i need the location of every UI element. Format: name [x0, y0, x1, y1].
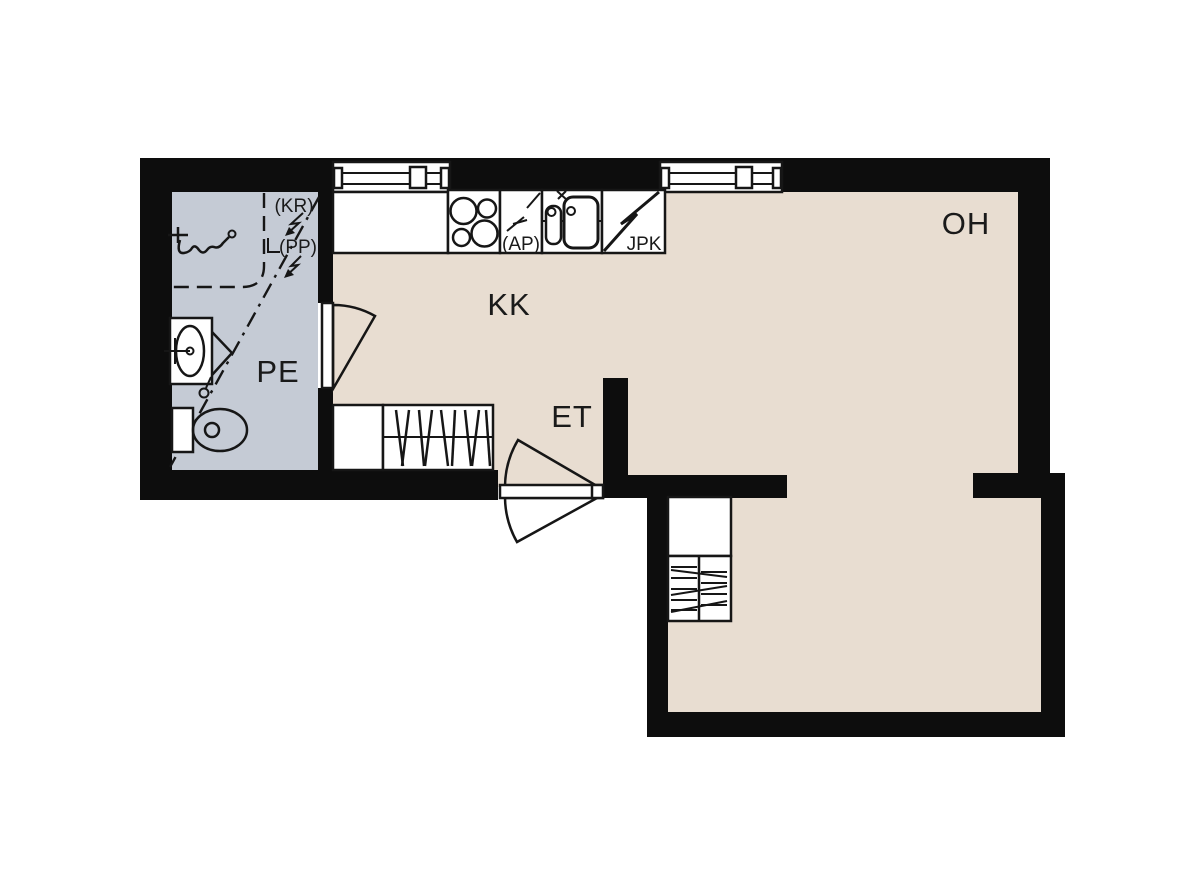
passage-floor — [787, 473, 973, 498]
kitchen-counter — [333, 190, 665, 253]
shelf-closet-symbol — [668, 556, 731, 621]
wall-lower-left — [647, 498, 668, 737]
room-label-oh: OH — [942, 206, 991, 241]
appliance-label-pp: (PP) — [279, 237, 317, 258]
wall-bottom-left — [140, 470, 498, 500]
kitchen-cabinets — [333, 405, 493, 470]
room-label-kk: KK — [487, 287, 530, 322]
wall-lower-bottom — [647, 712, 1065, 737]
wall-bathroom-divider-lower — [318, 388, 333, 470]
wall-left — [140, 158, 172, 500]
stove-symbol — [448, 190, 500, 253]
window-symbol-kitchen — [333, 162, 450, 192]
lower-room-closet — [668, 497, 731, 621]
sink-symbol — [542, 190, 602, 253]
room-label-et: ET — [551, 399, 593, 434]
wall-living-right — [1018, 158, 1050, 475]
floor-plan-page: OH KK PE ET JPK (AP) (KR) (PP) — [0, 0, 1200, 876]
wall-lower-right — [1041, 498, 1065, 737]
floor-plan-drawing: OH KK PE ET JPK (AP) (KR) (PP) — [0, 0, 1200, 876]
appliance-label-ap: (AP) — [502, 234, 540, 255]
cabinet-symbol — [333, 405, 383, 470]
wardrobe-symbol — [383, 405, 493, 470]
appliance-label-jpk: JPK — [627, 234, 662, 255]
closet-symbol — [668, 497, 731, 556]
room-label-pe: PE — [256, 354, 299, 389]
wall-hall-bottom — [603, 475, 787, 498]
wall-top — [140, 158, 1050, 192]
worktop-symbol — [333, 192, 448, 253]
wall-right-stub — [973, 473, 1065, 498]
appliance-label-kr: (KR) — [274, 196, 313, 217]
wall-bathroom-divider-upper — [318, 192, 333, 303]
window-symbol-living — [660, 162, 782, 192]
